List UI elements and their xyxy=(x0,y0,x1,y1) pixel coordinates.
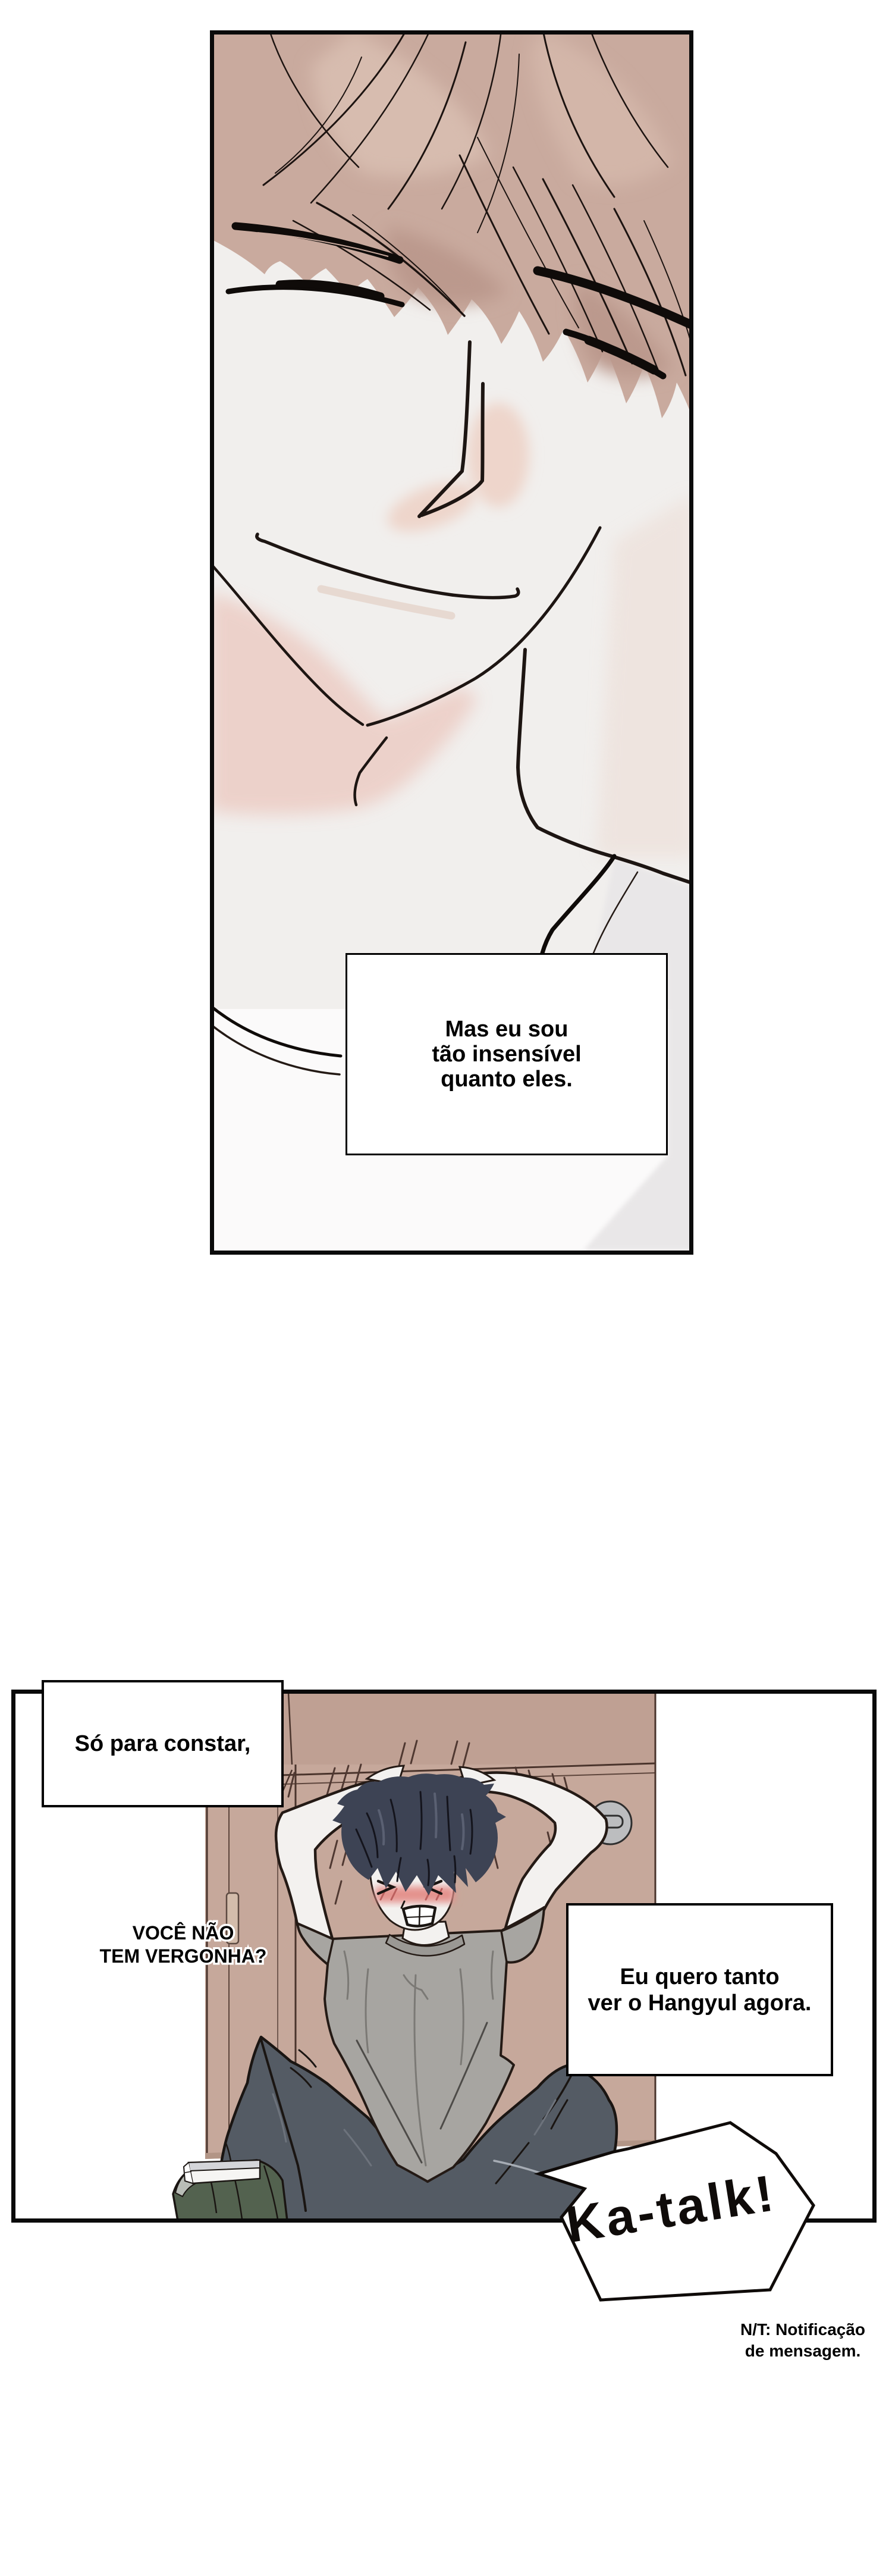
svg-text:VOCÊ NÃO: VOCÊ NÃO xyxy=(133,1922,234,1944)
svg-text:TEM VERGONHA?: TEM VERGONHA? xyxy=(100,1945,267,1967)
